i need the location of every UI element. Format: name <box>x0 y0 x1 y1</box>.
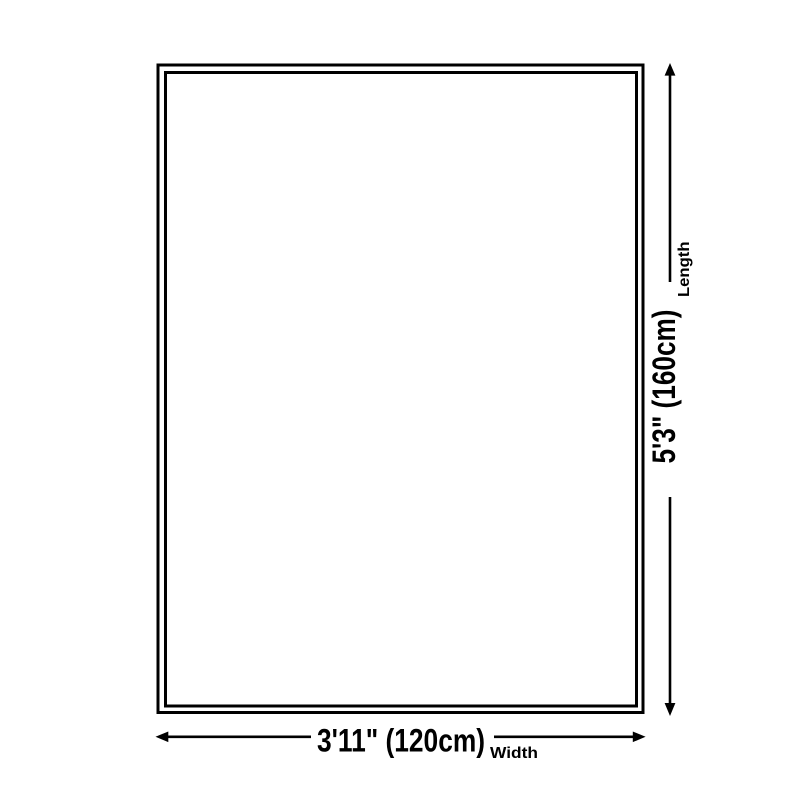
svg-text:Length: Length <box>676 242 693 298</box>
svg-text:5'3" (160cm): 5'3" (160cm) <box>646 310 682 464</box>
svg-text:Width: Width <box>490 745 538 762</box>
svg-text:3'11" (120cm): 3'11" (120cm) <box>317 723 485 759</box>
